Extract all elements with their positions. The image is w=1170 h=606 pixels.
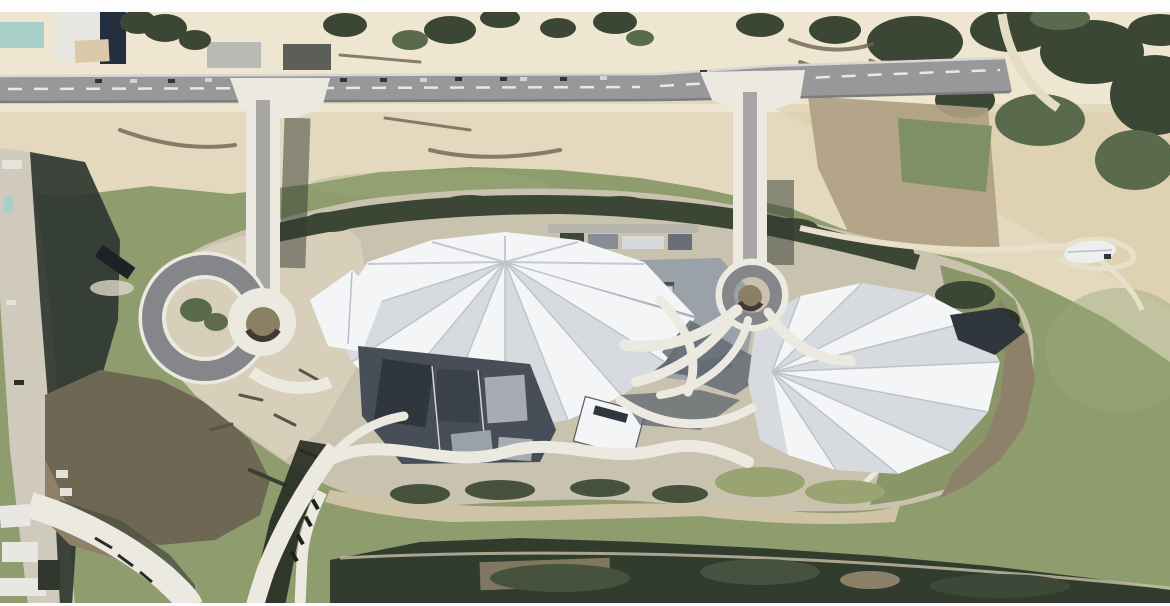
forest-blob [995,94,1085,146]
tree-blob [626,30,654,46]
green-field [898,118,992,192]
building [60,488,72,496]
tree-blob [304,212,356,232]
tree-blob [590,196,650,216]
car [520,77,527,81]
dock-building [668,234,692,250]
tree-blob [809,16,861,44]
car [560,77,567,81]
pier [548,224,698,233]
tree-blob [424,16,476,44]
tree-blob [736,13,784,37]
car [130,79,137,83]
car [420,78,427,82]
bridge-lane [743,92,757,272]
car [500,77,507,81]
dark-roof-building [283,44,331,70]
dark-detail [14,380,24,385]
car [340,78,347,82]
building [0,504,31,528]
veg-blob [465,480,535,500]
veg-blob [390,484,450,504]
tree-blob [540,18,576,38]
light-panel [484,375,527,424]
veg-blob [570,479,630,497]
dock-building [622,236,664,249]
bridge-shadow [766,180,794,265]
tan-roof [74,39,109,63]
building [56,470,68,478]
bridge-lane [256,100,270,292]
infield-trees [204,313,228,331]
car [600,76,607,80]
car [455,77,462,81]
teal-roof-building [0,22,44,48]
veg-blob [700,559,820,585]
white-detail [6,300,16,305]
lawn-patch [805,480,885,504]
car [168,79,175,83]
teal-detail [3,196,13,215]
white-detail [2,160,22,169]
tree-blob [323,13,367,37]
top-frame-strip [0,0,1170,12]
tree-blob [179,30,211,50]
car [95,79,102,83]
glass-panel [435,369,482,423]
car [380,78,387,82]
mud-blob [840,571,900,589]
veg-blob [930,574,1070,598]
aerial-photo [0,0,1170,606]
bridge-shadow [279,118,310,269]
veg-blob [652,485,708,503]
boat-wake [90,280,134,296]
tree-blob [440,195,500,215]
veg-blob [490,564,630,592]
gray-building [207,42,261,68]
tree-blob [392,30,428,50]
dark-building [38,560,60,590]
lawn-patch [715,467,805,497]
boat-stern [1104,254,1111,259]
tree-blob [120,10,156,34]
tree-blob [593,10,637,34]
car [205,78,212,82]
building [2,542,38,562]
aerial-photo-canvas [0,0,1170,606]
